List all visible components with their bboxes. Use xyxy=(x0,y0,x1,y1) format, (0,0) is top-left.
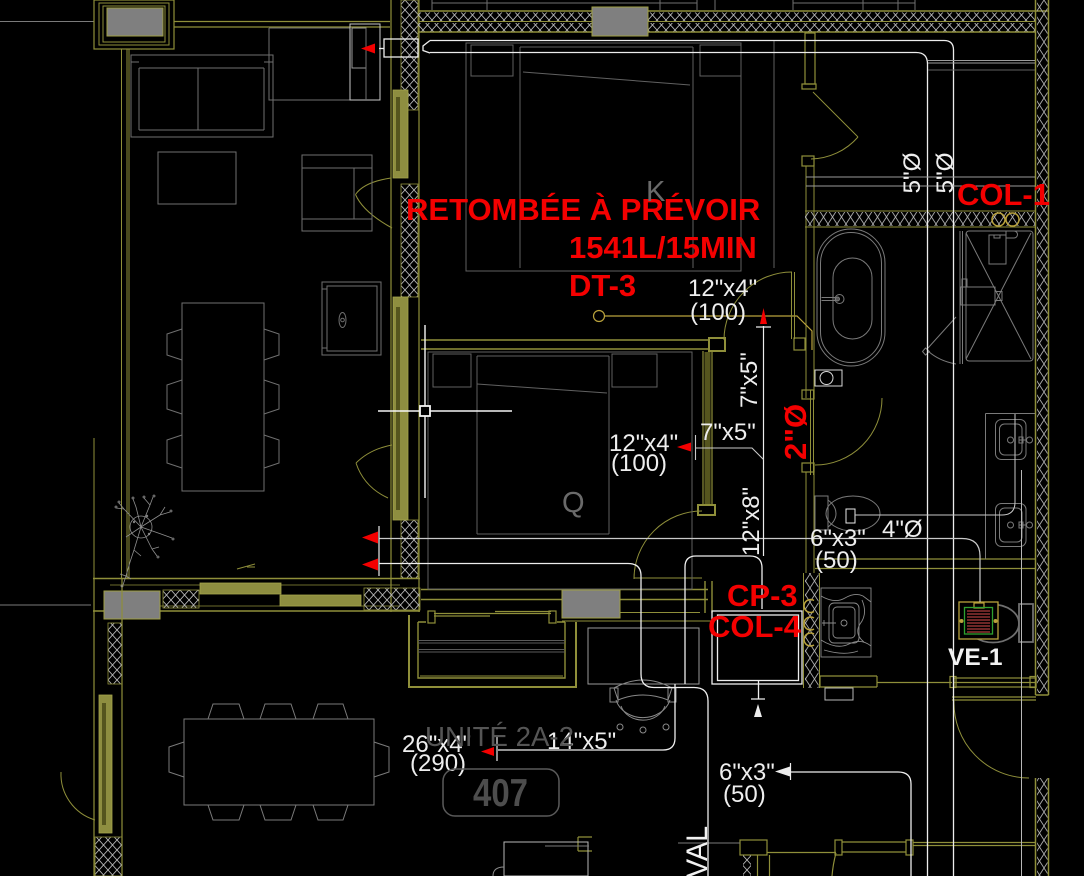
svg-text:COL-1: COL-1 xyxy=(957,177,1050,212)
svg-text:1541L/15MIN: 1541L/15MIN xyxy=(569,230,757,265)
svg-text:2"Ø: 2"Ø xyxy=(778,404,813,460)
svg-text:COL-4: COL-4 xyxy=(708,609,802,644)
svg-text:(50): (50) xyxy=(723,781,766,808)
svg-text:(290): (290) xyxy=(410,750,466,777)
svg-text:K: K xyxy=(646,176,666,208)
svg-text:VAL: VAL xyxy=(681,826,714,876)
svg-text:RETOMBÉE À PRÉVOIR: RETOMBÉE À PRÉVOIR xyxy=(406,192,760,227)
svg-text:7"x5": 7"x5" xyxy=(736,352,763,408)
svg-text:12"x4": 12"x4" xyxy=(688,275,757,302)
svg-text:Q: Q xyxy=(562,487,585,519)
svg-text:7"x5": 7"x5" xyxy=(700,419,756,446)
svg-text:DT-3: DT-3 xyxy=(569,268,636,303)
svg-text:(100): (100) xyxy=(690,299,746,326)
svg-text:(50): (50) xyxy=(815,547,858,574)
svg-text:4"Ø: 4"Ø xyxy=(882,516,923,543)
svg-text:407: 407 xyxy=(473,772,528,815)
svg-text:VE-1: VE-1 xyxy=(948,644,1002,671)
svg-text:UNITÉ 2A-2: UNITÉ 2A-2 xyxy=(425,721,574,752)
svg-text:12"x8": 12"x8" xyxy=(738,487,765,556)
svg-text:5"Ø: 5"Ø xyxy=(932,153,959,194)
svg-text:5"Ø: 5"Ø xyxy=(899,153,926,194)
svg-text:(100): (100) xyxy=(611,450,667,477)
svg-text:CP-3: CP-3 xyxy=(727,578,798,613)
